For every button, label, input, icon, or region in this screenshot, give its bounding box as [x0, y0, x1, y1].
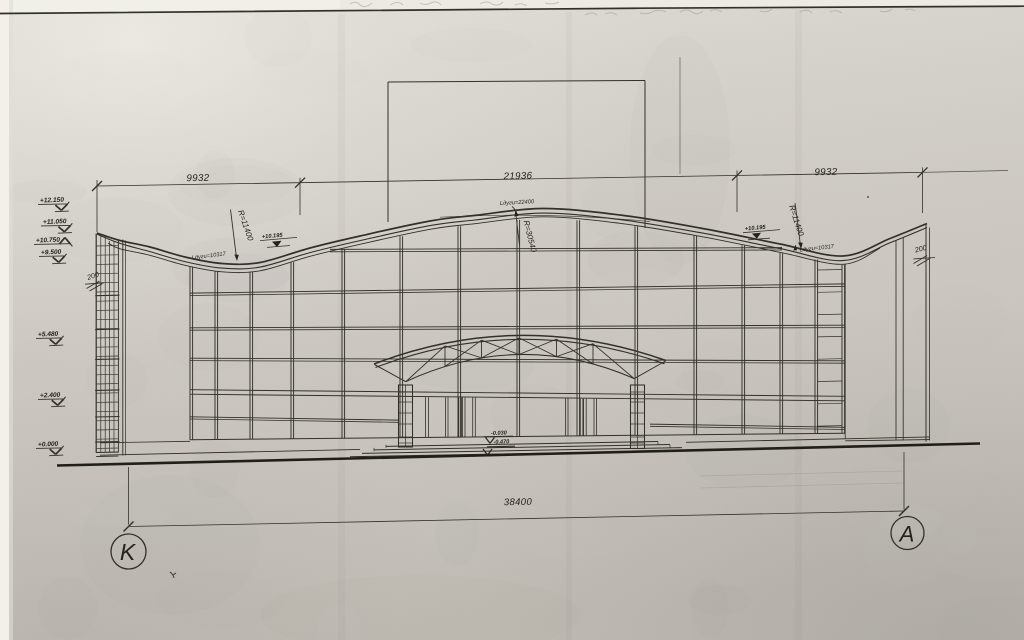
svg-text:21936: 21936 — [502, 171, 532, 183]
svg-text:K: K — [120, 539, 137, 565]
svg-text:+2.400: +2.400 — [40, 392, 61, 400]
svg-text:A: A — [898, 522, 915, 547]
svg-text:+11.050: +11.050 — [43, 218, 67, 226]
svg-text:9932: 9932 — [814, 167, 838, 179]
svg-text:-0.470: -0.470 — [493, 439, 510, 446]
svg-text:+12.150: +12.150 — [40, 197, 65, 205]
svg-text:9932: 9932 — [186, 173, 210, 185]
svg-text:38400: 38400 — [504, 497, 533, 509]
svg-text:+5.480: +5.480 — [38, 331, 59, 339]
svg-text:+9.500: +9.500 — [41, 249, 62, 257]
svg-text:+10.750: +10.750 — [36, 237, 61, 245]
svg-text:+0.000: +0.000 — [38, 441, 59, 449]
